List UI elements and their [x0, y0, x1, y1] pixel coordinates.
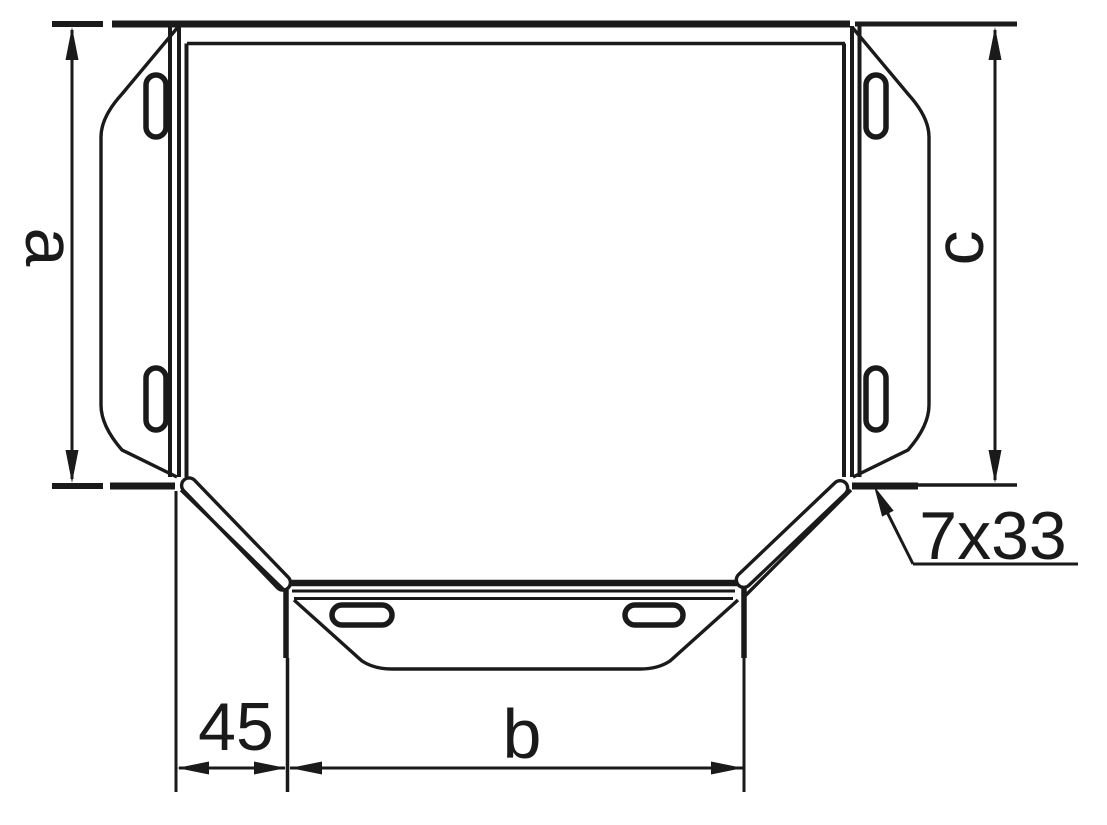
- dimension-a-arrow-down: [66, 450, 79, 483]
- cable-tray-tee-drawing: a c 45 b 7x33: [0, 0, 1107, 825]
- dimension-45-label: 45: [198, 689, 274, 765]
- dimension-b-arrow-right: [711, 762, 743, 775]
- right-chamfer-inner-line: [745, 490, 851, 596]
- dimension-c-arrow-up: [989, 27, 1002, 60]
- dimension-a-label: a: [11, 228, 89, 267]
- mounting-slot-bottom-right: [625, 605, 683, 625]
- slot-size-label: 7x33: [919, 498, 1066, 574]
- right-bend-joint: [733, 478, 851, 591]
- slot-size-callout: 7x33: [874, 486, 1078, 574]
- mounting-slot-right-top: [866, 75, 886, 137]
- dimension-b-label: b: [503, 695, 542, 773]
- left-bend-joint-bar: [179, 475, 294, 593]
- left-chamfer-inner-line: [181, 490, 287, 593]
- dimension-a-arrow-up: [66, 27, 79, 60]
- dimension-b-arrow-left: [290, 762, 322, 775]
- left-bend-joint: [179, 475, 294, 593]
- mounting-slot-right-bottom: [866, 368, 886, 430]
- dimension-c-arrow-down: [989, 450, 1002, 483]
- mounting-slot-left-bottom: [146, 368, 166, 430]
- technical-drawing-canvas: a c 45 b 7x33: [0, 0, 1107, 825]
- mounting-slot-bottom-left: [332, 605, 392, 625]
- mounting-slot-left-top: [146, 75, 166, 137]
- slot-callout-arrowhead: [874, 486, 894, 517]
- dimension-c-label: c: [920, 231, 998, 266]
- right-bend-joint-bar: [733, 478, 851, 591]
- dimension-b: b: [290, 658, 744, 792]
- dimension-a: a: [11, 24, 103, 486]
- tray-body: [101, 24, 929, 669]
